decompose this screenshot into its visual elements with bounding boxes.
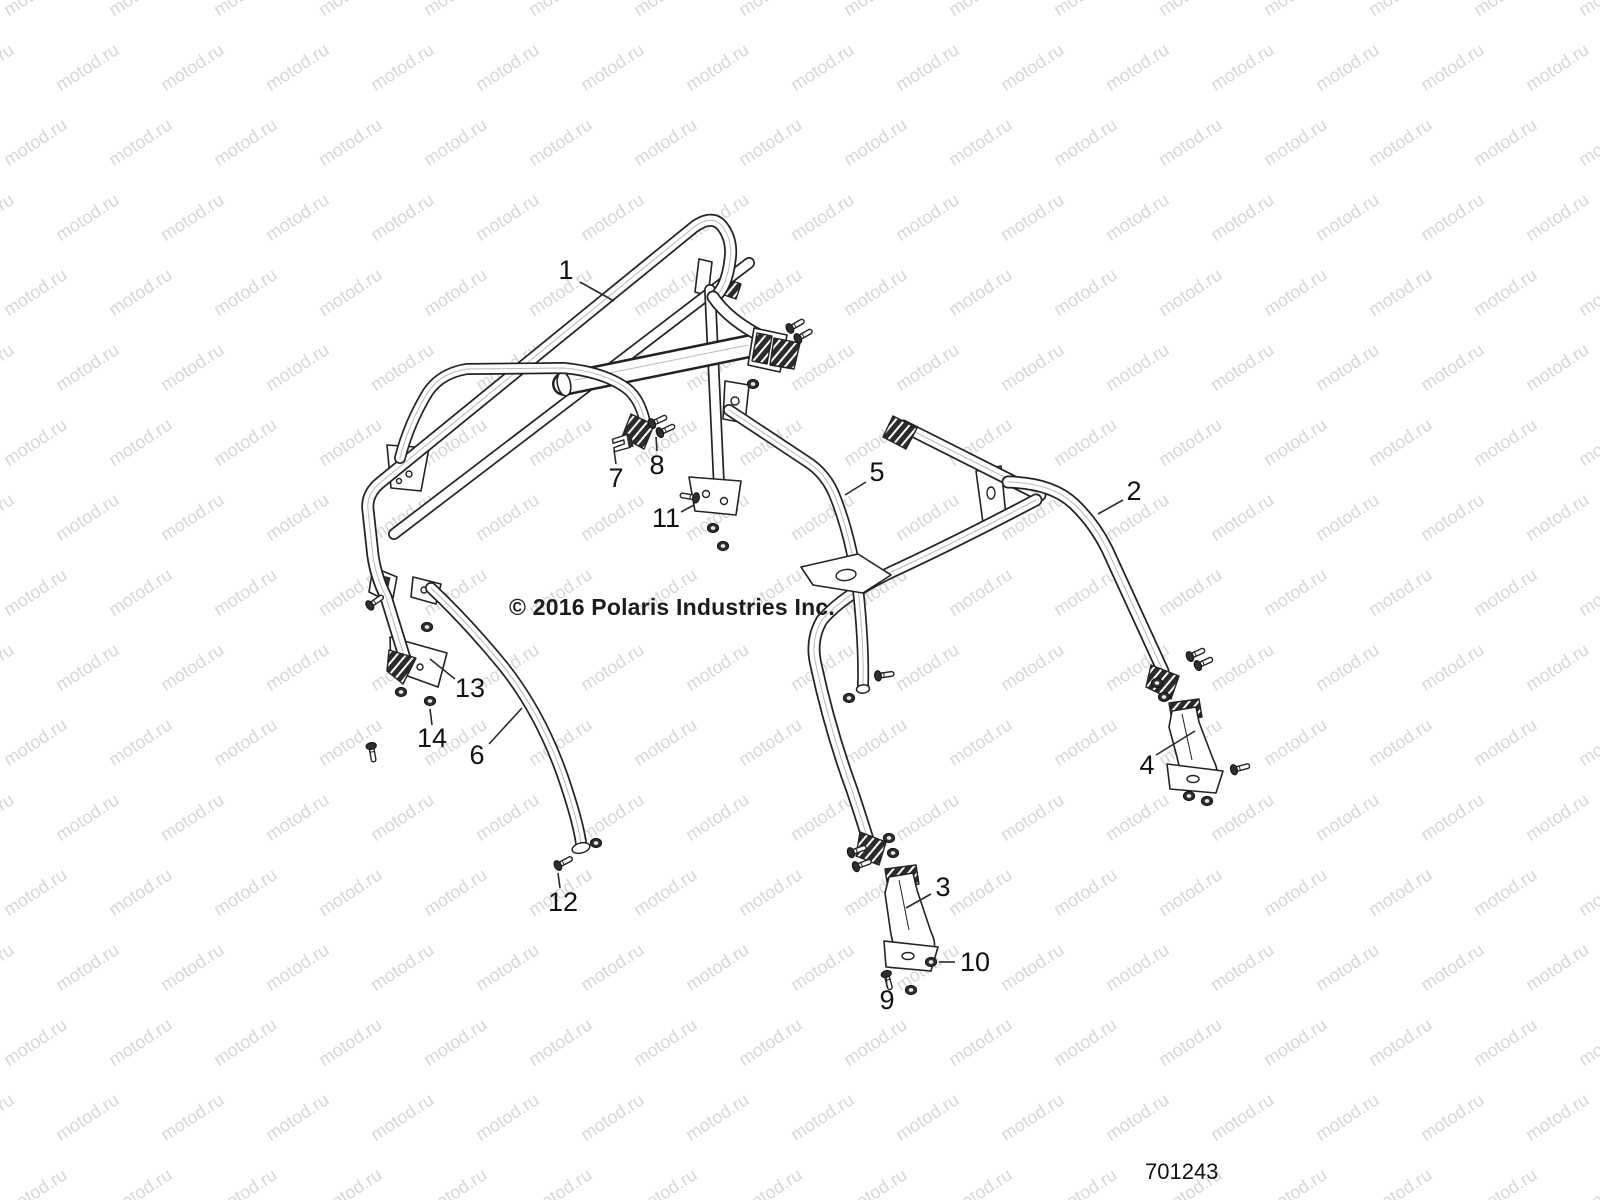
nut — [887, 848, 898, 857]
brace-clamp-bolt — [874, 668, 895, 681]
callout-7: 7 — [608, 450, 623, 493]
callout-12: 12 — [548, 873, 578, 917]
tube-6-front-lower — [431, 588, 591, 855]
callout-number: 1 — [558, 255, 573, 285]
nut — [421, 622, 432, 631]
bolt-12 — [552, 853, 574, 871]
callout-number: 12 — [548, 887, 578, 917]
callout-5: 5 — [845, 457, 885, 495]
diagram-number: 701243 — [1145, 1159, 1218, 1185]
b-pillar-tube — [710, 290, 719, 486]
nut — [905, 985, 916, 994]
nut — [717, 541, 728, 550]
rear-rail-end-cap — [883, 416, 917, 449]
nut — [747, 379, 758, 388]
bolt — [365, 742, 379, 763]
front-intrusion-bar — [400, 368, 654, 458]
callout-number: 3 — [935, 872, 950, 902]
callout-8: 8 — [649, 437, 664, 480]
clamp-7 — [612, 433, 634, 451]
callout-leader-line — [489, 708, 522, 744]
bolt-top-b — [792, 326, 814, 345]
nut — [590, 838, 601, 847]
callout-number: 4 — [1139, 750, 1154, 780]
callout-number: 10 — [960, 947, 990, 977]
cross-tube-end-plates — [748, 328, 800, 372]
nut — [1151, 678, 1162, 687]
nut — [843, 693, 854, 702]
parts-diagram-page: motod.rumotod.rumotod.rumotod.rumotod.ru… — [0, 0, 1600, 1200]
callout-number: 5 — [869, 457, 884, 487]
tube-2-right-rear — [1008, 482, 1179, 699]
callout-leader-line — [681, 505, 694, 512]
callout-10: 10 — [939, 947, 990, 977]
callout-leader-line — [558, 873, 560, 888]
tube-5-rear-brace — [729, 410, 870, 694]
callout-leader-line — [614, 450, 616, 464]
callout-9: 9 — [879, 977, 894, 1015]
callout-14: 14 — [417, 709, 447, 753]
copyright-text: © 2016 Polaris Industries Inc. — [509, 594, 835, 621]
callout-number: 8 — [649, 450, 664, 480]
callout-leader-line — [1098, 500, 1123, 514]
callout-11: 11 — [652, 503, 694, 533]
nut — [395, 687, 406, 696]
nut — [883, 833, 894, 842]
callout-number: 2 — [1126, 476, 1141, 506]
nut-10 — [925, 957, 936, 966]
mount-bracket-3 — [884, 865, 938, 971]
nut — [1183, 791, 1194, 800]
callout-number: 13 — [455, 673, 485, 703]
mount-bracket-4 — [1167, 699, 1223, 793]
nut — [1158, 692, 1169, 701]
callout-leader-line — [656, 437, 657, 451]
callout-leader-line — [845, 482, 866, 495]
brace-lower-bracket — [801, 554, 891, 593]
nut — [707, 523, 718, 532]
bolt-top-a — [784, 316, 806, 335]
callout-6: 6 — [469, 708, 522, 770]
callout-number: 14 — [417, 723, 447, 753]
nut-14 — [424, 696, 435, 705]
nut — [1201, 796, 1212, 805]
callout-number: 7 — [608, 463, 623, 493]
callout-number: 6 — [469, 740, 484, 770]
callout-2: 2 — [1098, 476, 1142, 514]
bolt — [1229, 761, 1250, 776]
callout-number: 9 — [879, 985, 894, 1015]
callout-number: 11 — [652, 503, 680, 533]
